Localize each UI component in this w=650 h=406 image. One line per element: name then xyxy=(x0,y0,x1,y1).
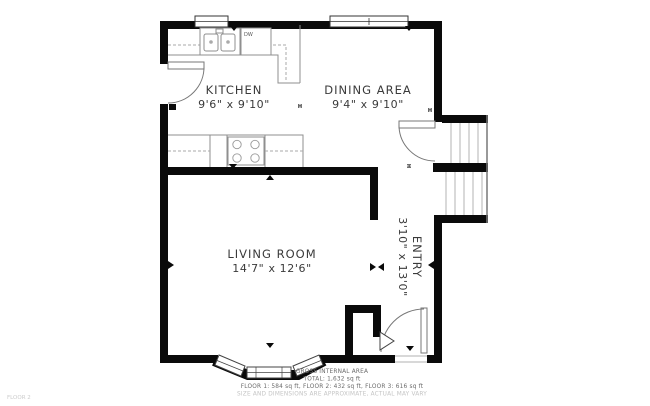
wall-left-upper xyxy=(160,21,168,64)
wall-bottom-left xyxy=(160,355,218,363)
wall-kitchen-living xyxy=(160,167,378,175)
marker-right-wall xyxy=(428,261,434,269)
wall-right-lower xyxy=(434,215,442,363)
marker-entry-door xyxy=(406,346,414,351)
floorplan-svg: DW xyxy=(0,0,650,406)
stairs-wall-top xyxy=(442,115,488,123)
marker-bay xyxy=(266,343,274,348)
entry-label-group: ENTRY 3'10" x 13'0" xyxy=(396,217,424,296)
marker-stub-right xyxy=(370,263,376,271)
wall-living-entry-stub xyxy=(370,175,378,220)
dining-dims: 9'4" x 9'10" xyxy=(332,98,404,111)
living-room-label: LIVING ROOM xyxy=(227,247,316,261)
kitchen-sink xyxy=(200,28,240,55)
stair-treads-upper xyxy=(451,123,478,163)
wall-left-lower xyxy=(160,104,168,363)
plan-markers: H H H xyxy=(168,26,434,351)
dishwasher-label: DW xyxy=(244,32,253,38)
entry-door-leaf xyxy=(421,308,427,353)
opening-mark-entry: H xyxy=(405,164,411,168)
entry-dims: 3'10" x 13'0" xyxy=(396,217,409,296)
entry-label: ENTRY xyxy=(410,236,424,278)
kitchen-label: KITCHEN xyxy=(206,83,263,97)
door-stop-marker xyxy=(169,104,176,110)
stairs-wall-mid xyxy=(433,163,488,172)
wall-right-upper xyxy=(434,21,442,122)
closet-wall-left xyxy=(345,305,353,357)
window-kitchen xyxy=(195,16,228,27)
floor-indicator: FLOOR 2 xyxy=(7,395,31,401)
dining-label: DINING AREA xyxy=(324,83,411,97)
bifold-door-icon xyxy=(380,332,394,350)
entry-door xyxy=(381,308,427,362)
marker-left-wall xyxy=(168,261,174,269)
stairs-door-arc xyxy=(399,125,435,161)
marker-living-wall xyxy=(266,175,274,180)
floorplan-page: DW xyxy=(0,0,650,406)
kitchen-dims: 9'6" x 9'10" xyxy=(198,98,270,111)
footer-total: TOTAL: 1,632 sq ft xyxy=(303,377,362,383)
stair-treads-lower xyxy=(446,172,482,215)
footer-floors: FLOOR 1: 584 sq ft, FLOOR 2: 432 sq ft, … xyxy=(241,384,424,390)
stairs-door-leaf xyxy=(399,121,435,128)
stairs-wall-bottom xyxy=(442,215,488,223)
walls xyxy=(160,21,442,363)
stairs-door xyxy=(399,121,435,161)
stove xyxy=(228,137,264,165)
faucet-icon xyxy=(216,29,223,33)
kitchen-door-leaf xyxy=(168,62,204,69)
marker-entry-left xyxy=(378,263,384,271)
opening-mark-stairs: H xyxy=(428,108,432,114)
footer-disclaimer: SIZE AND DIMENSIONS ARE APPROXIMATE, ACT… xyxy=(237,392,427,398)
opening-mark-kitchen-dining: H xyxy=(298,104,302,110)
window-dining xyxy=(330,16,408,27)
living-room-dims: 14'7" x 12'6" xyxy=(232,262,311,275)
staircase xyxy=(433,115,488,223)
footer-area-title: GROSS INTERNAL AREA xyxy=(296,369,368,375)
wall-bottom-mid xyxy=(318,355,395,363)
dishwasher: DW xyxy=(241,28,271,55)
